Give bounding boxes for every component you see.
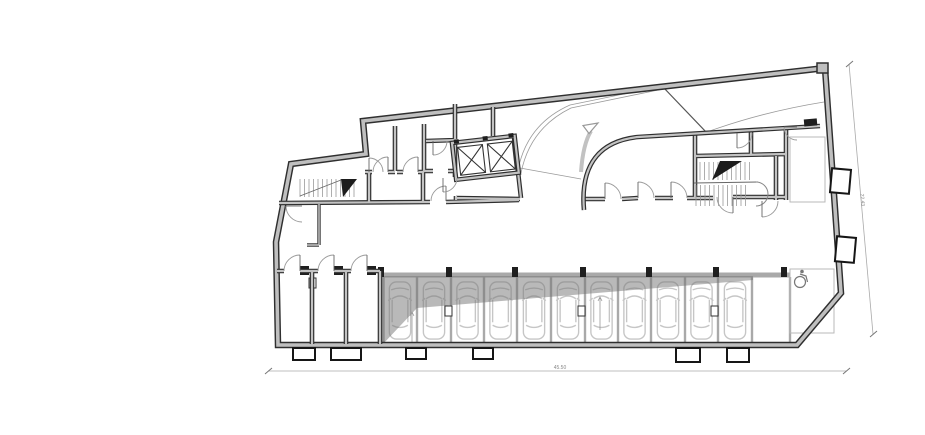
shaft-void-outline [790,137,825,202]
elevator-x-icon [458,145,486,176]
dimension-right-label: 22.43 [858,194,865,207]
elevator-block [452,133,519,180]
dimension-right: 22.43 [846,61,877,337]
vestibule-walls [307,204,319,245]
stair-direction-mark [341,179,357,197]
floor-plan-page: 45.50 22.43 [0,0,925,435]
ceiling-slope-shading [383,276,753,344]
dimension-bottom-label: 45.50 [554,365,567,371]
elevator-x-icon [487,141,515,172]
wall-end-cap [817,63,828,73]
ramp-gate-marker [804,118,818,126]
pilasters [293,348,749,362]
floor-plan-drawing: 45.50 22.43 [0,0,925,435]
car-icon [656,282,680,339]
exterior-walls [276,68,841,345]
accessible-parking-icon [795,270,808,288]
dimension-bottom: 45.50 [265,365,850,374]
car-icon [690,282,714,339]
parking-area [378,267,834,345]
ramp-slope-break-line [663,87,707,133]
car-icon [723,282,747,339]
door-swings [284,127,797,271]
stair-left [300,179,357,197]
